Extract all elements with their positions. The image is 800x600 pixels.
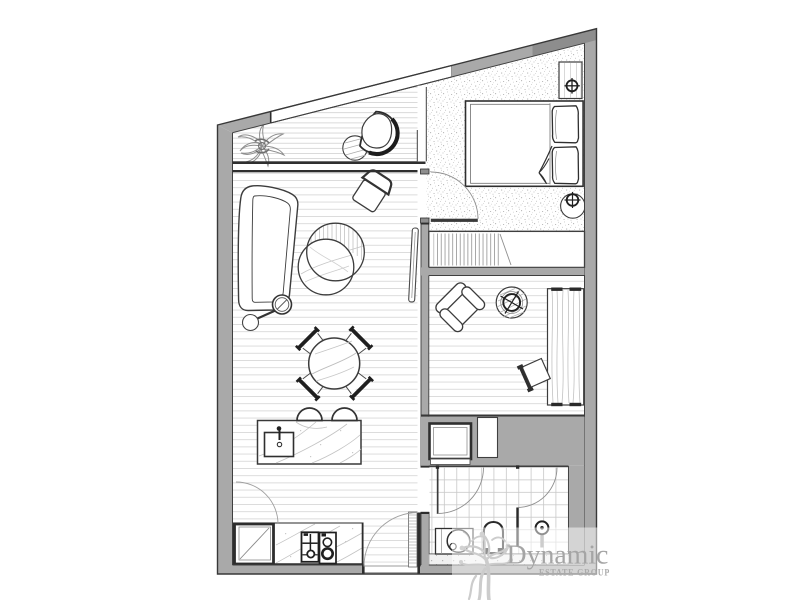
svg-text:ESTATE GROUP: ESTATE GROUP — [539, 567, 610, 578]
svg-text:Dynamic: Dynamic — [507, 540, 609, 570]
